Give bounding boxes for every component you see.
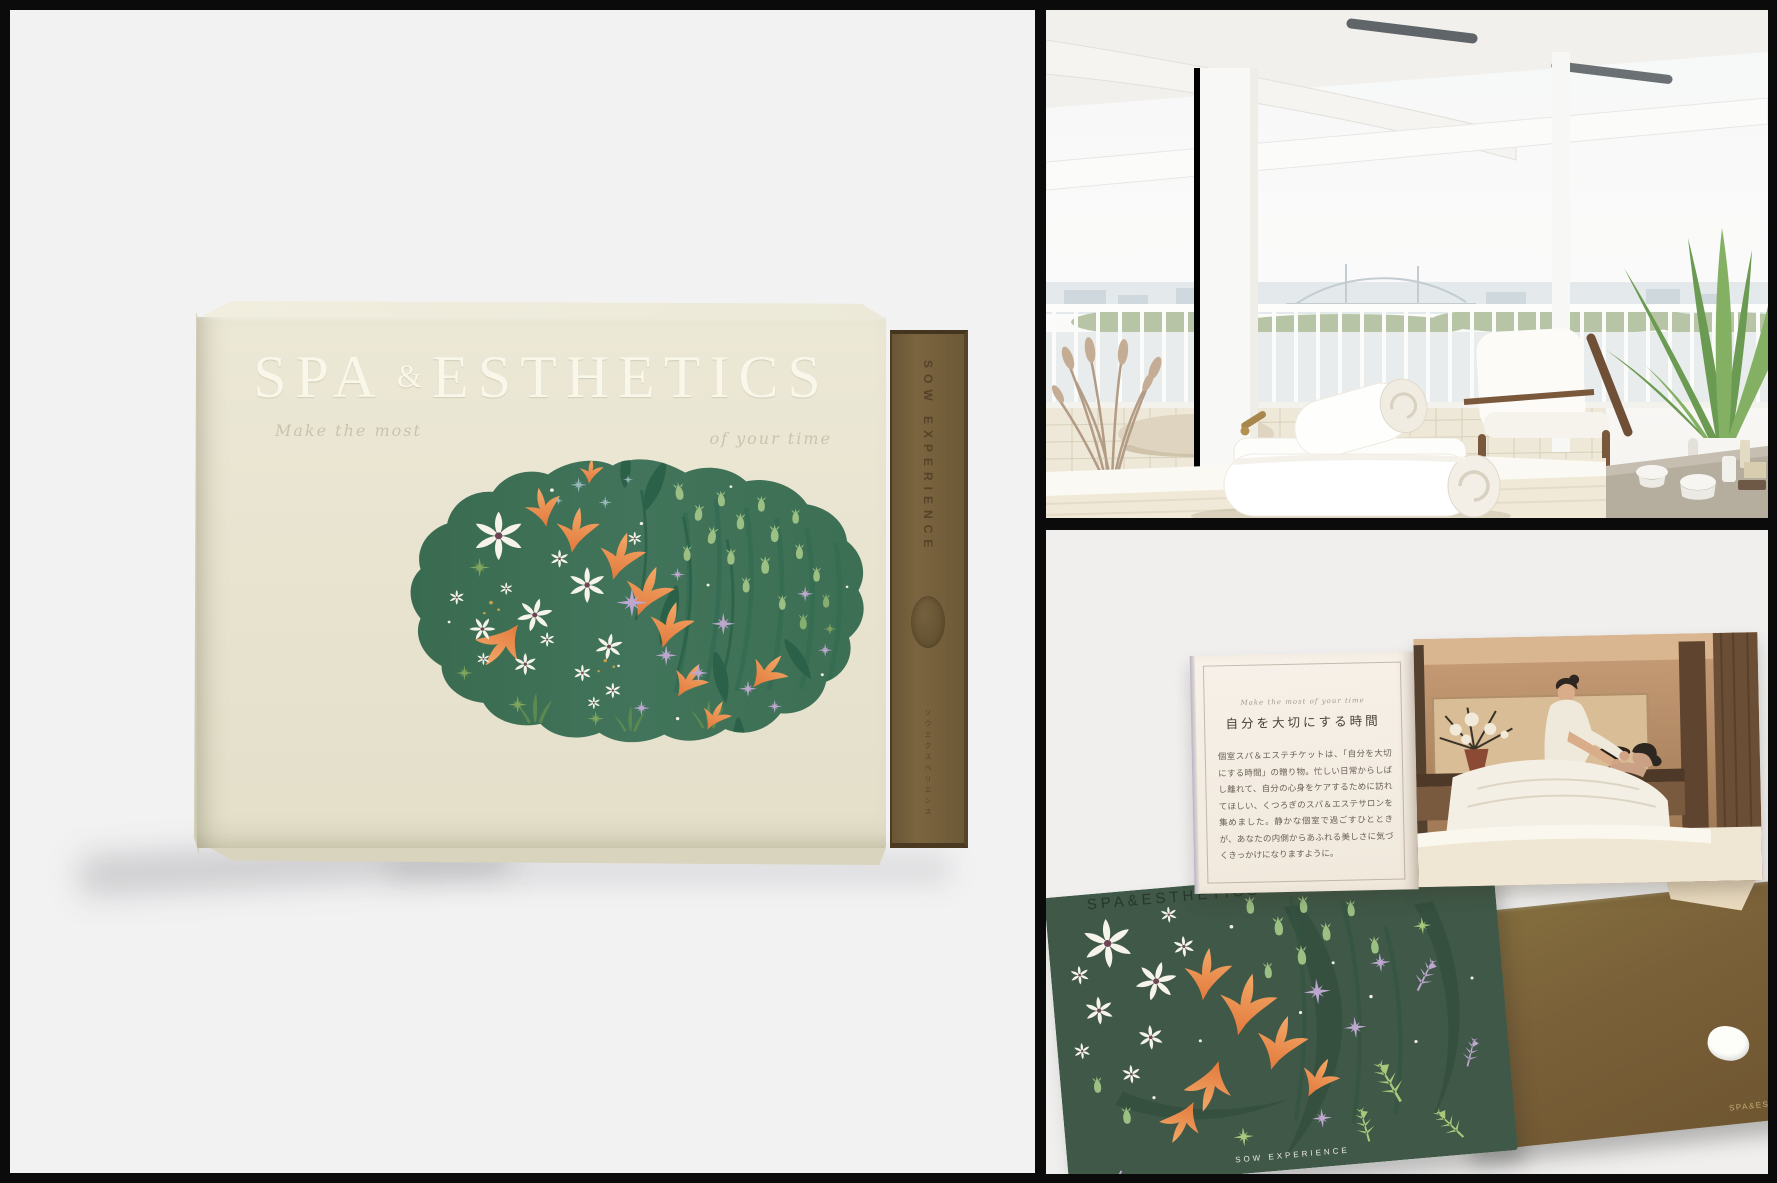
spine-japanese-text: ソウエクスペリエンス	[923, 709, 933, 819]
box-tagline-right: of your time	[709, 429, 832, 448]
dark-tray	[1738, 480, 1766, 490]
beige-box	[1744, 462, 1766, 478]
box-title-spa: SPA	[253, 344, 385, 410]
box-title-ampersand: &	[397, 359, 422, 395]
box-title: SPA&ESTHETICS	[197, 343, 886, 412]
botanical-illustration	[392, 455, 868, 745]
slipcase-spine: SOW EXPERIENCE ソウエクスペリエンス	[890, 330, 968, 848]
spine-brand-text: SOW EXPERIENCE	[921, 360, 935, 553]
photo-collage: SPA&ESTHETICS Make the most of your time	[0, 0, 1777, 1183]
spa-room-photo	[1046, 10, 1768, 518]
catalog-cover-card: SPA&ESTHETICS SOW EXPERIENCE	[1046, 859, 1518, 1174]
booklet-photo-page	[1413, 632, 1762, 887]
emblem-oval-icon	[911, 596, 945, 648]
booklet-body-text: 個室スパ＆エステチケットは、「自分を大切にする時間」の贈り物。忙しい日常からしば…	[1218, 746, 1394, 866]
envelope-brand-text: SPA&ESTHETICS	[1729, 1095, 1768, 1113]
massage-scene	[1413, 632, 1762, 887]
gift-box-photo: SPA&ESTHETICS Make the most of your time	[10, 10, 1035, 1173]
cosmetic-bottle	[1722, 456, 1736, 482]
glass-door-frame	[1194, 68, 1267, 488]
box-tagline-left: Make the most	[275, 421, 422, 440]
brochure-photo: SPA&ESTHETICS SOW EXPERIENCE SPA&ESTHETI…	[1046, 530, 1768, 1174]
box-title-esthetics: ESTHETICS	[432, 344, 830, 410]
booklet-left-page: Make the most of your time 自分を大切にする時間 個室…	[1190, 651, 1419, 894]
wax-seal-sticker	[1705, 1023, 1752, 1064]
box-front-face: SPA&ESTHETICS Make the most of your time	[197, 317, 886, 848]
open-booklet: Make the most of your time 自分を大切にする時間 個室…	[1189, 632, 1762, 896]
page-edge	[1190, 656, 1200, 894]
